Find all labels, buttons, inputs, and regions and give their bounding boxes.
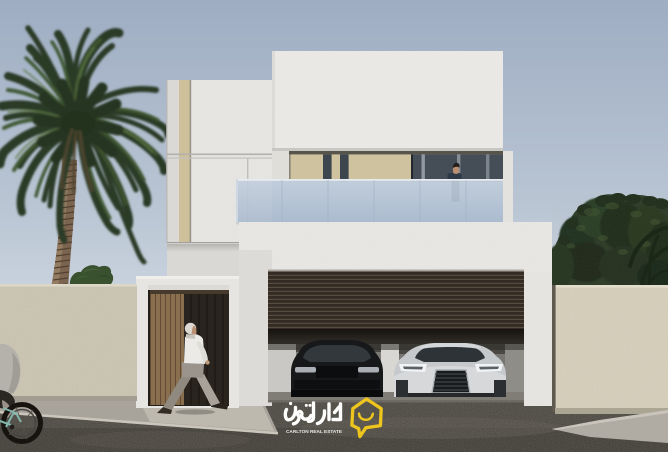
svg-text:CARLTON REAL ESTATE: CARLTON REAL ESTATE xyxy=(286,429,342,434)
